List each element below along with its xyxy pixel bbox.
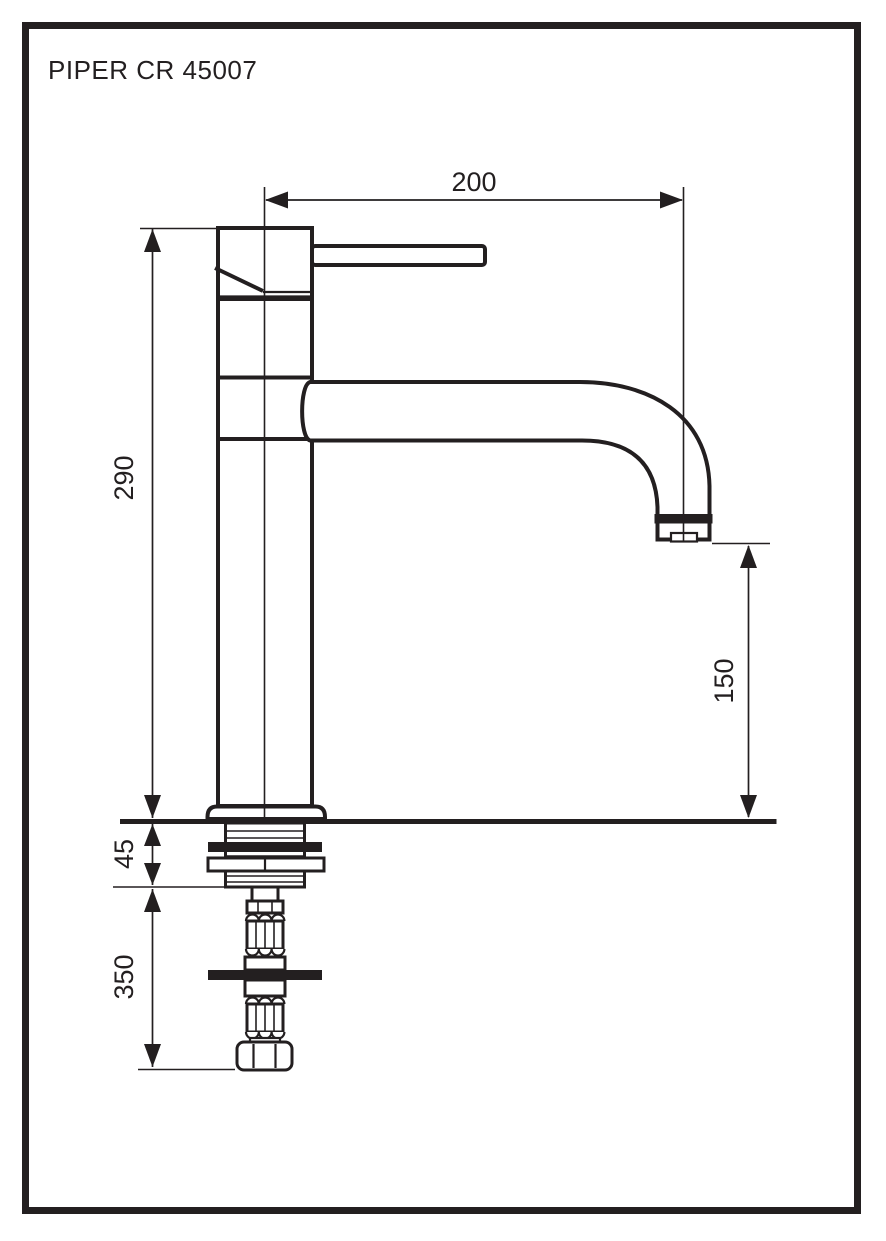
arrowhead-down xyxy=(144,1044,161,1067)
reference-lines-group xyxy=(113,187,770,1070)
base-flange xyxy=(208,807,326,820)
dimension-spout-reach: 200 xyxy=(265,167,683,209)
arrowhead-up xyxy=(144,889,161,912)
dimension-outlet-height: 150 xyxy=(709,545,757,818)
page-border xyxy=(26,26,858,1211)
drawing-sheet: PIPER CR 45007 xyxy=(0,0,886,1241)
arrowhead-right xyxy=(660,192,683,209)
hose-crimp-ring xyxy=(246,949,284,956)
hose-tube xyxy=(252,887,278,901)
arrowhead-down xyxy=(144,795,161,818)
mounting-hardware-group xyxy=(208,823,324,1070)
dimension-hose-drop: 350 xyxy=(109,889,161,1067)
arrowhead-left xyxy=(265,192,288,209)
arrowhead-up xyxy=(144,824,161,846)
hose-hex-collar xyxy=(247,901,283,913)
rubber-gasket xyxy=(208,842,322,852)
arrowhead-up xyxy=(740,545,757,568)
dimension-value: 290 xyxy=(109,455,139,500)
dimension-value: 45 xyxy=(109,839,139,869)
spout xyxy=(302,382,709,540)
arrowhead-down xyxy=(740,795,757,818)
threaded-shank xyxy=(226,823,305,887)
arrowhead-down xyxy=(144,863,161,885)
hose-coupling xyxy=(245,980,285,996)
hose-end-nut xyxy=(237,1042,292,1070)
dimension-value: 200 xyxy=(451,167,496,197)
faucet-technical-drawing: PIPER CR 45007 xyxy=(0,0,886,1241)
product-title: PIPER CR 45007 xyxy=(48,55,257,85)
dimension-value: 350 xyxy=(109,954,139,999)
hose-coupling xyxy=(245,957,285,970)
dimension-deck-depth: 45 xyxy=(109,824,161,885)
lever-handle xyxy=(312,246,485,265)
arrowhead-up xyxy=(144,229,161,252)
faucet-body-group xyxy=(208,228,713,819)
dimension-value: 150 xyxy=(709,658,739,703)
dimension-overall-height: 290 xyxy=(109,229,161,818)
